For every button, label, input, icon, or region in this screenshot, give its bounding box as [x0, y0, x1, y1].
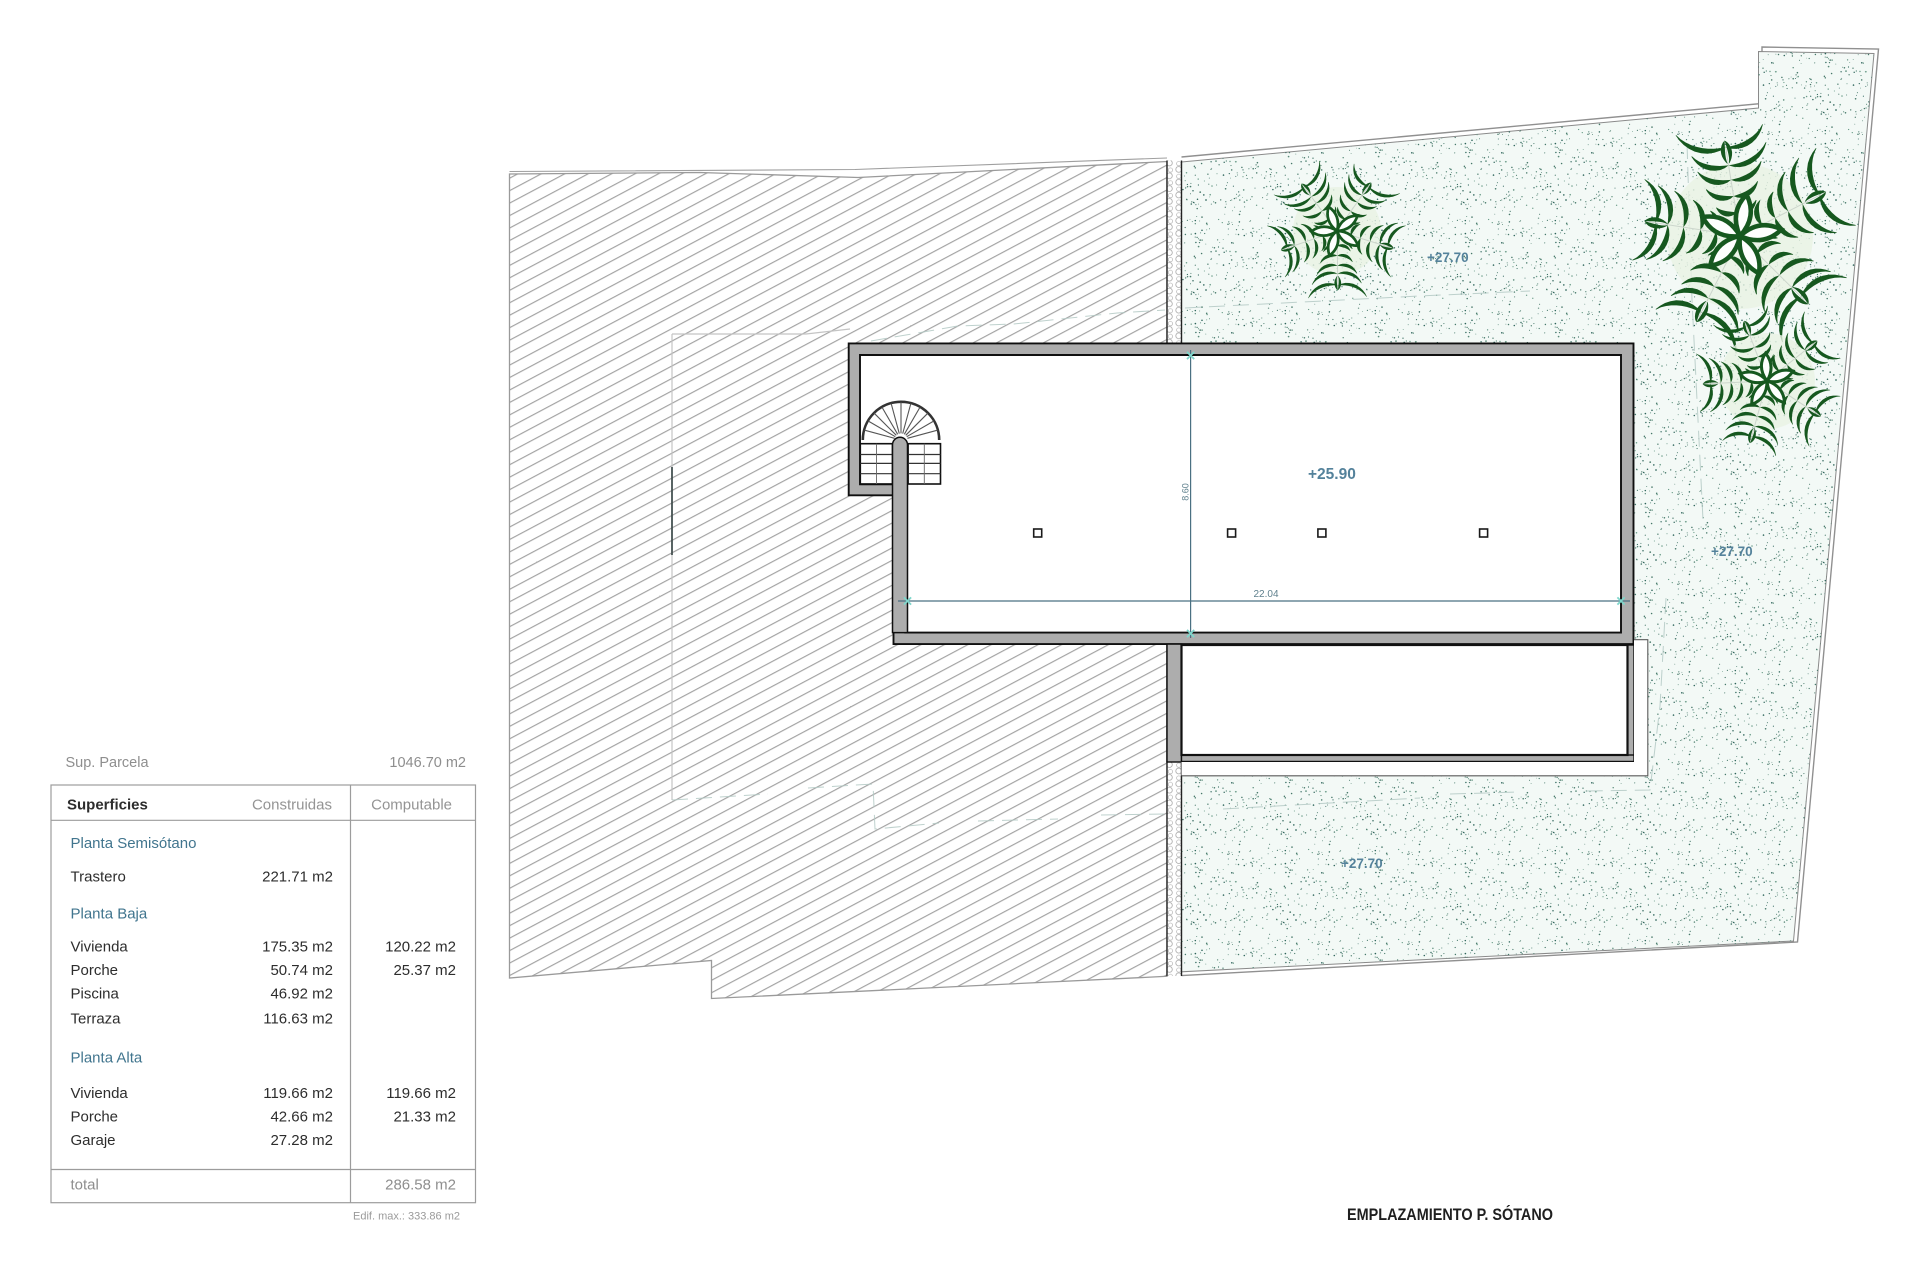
svg-text:EMPLAZAMIENTO P. SÓTANO: EMPLAZAMIENTO P. SÓTANO	[1347, 1205, 1553, 1224]
svg-text:Superficies: Superficies	[67, 797, 148, 814]
svg-text:total: total	[71, 1177, 99, 1194]
svg-text:Sup. Parcela: Sup. Parcela	[66, 755, 150, 771]
svg-text:116.63 m2: 116.63 m2	[263, 1011, 333, 1028]
svg-text:27.28 m2: 27.28 m2	[270, 1132, 333, 1149]
svg-text:Construidas: Construidas	[252, 797, 332, 814]
svg-text:Planta Alta: Planta Alta	[71, 1050, 143, 1067]
svg-text:50.74 m2: 50.74 m2	[270, 962, 333, 979]
svg-text:22.04: 22.04	[1253, 589, 1278, 600]
svg-text:21.33 m2: 21.33 m2	[393, 1109, 456, 1126]
svg-text:119.66 m2: 119.66 m2	[263, 1085, 333, 1102]
svg-text:221.71 m2: 221.71 m2	[262, 869, 333, 886]
svg-text:8.60: 8.60	[1181, 483, 1191, 501]
svg-text:+27.70: +27.70	[1427, 250, 1469, 265]
svg-text:286.58 m2: 286.58 m2	[385, 1177, 456, 1194]
svg-text:46.92 m2: 46.92 m2	[270, 986, 333, 1003]
svg-text:Edif. max.: 333.86 m2: Edif. max.: 333.86 m2	[353, 1211, 460, 1223]
svg-text:Computable: Computable	[371, 797, 452, 814]
svg-text:+27.70: +27.70	[1711, 544, 1753, 559]
svg-text:42.66 m2: 42.66 m2	[270, 1109, 333, 1126]
svg-text:120.22 m2: 120.22 m2	[385, 939, 456, 956]
svg-text:+25.90: +25.90	[1308, 466, 1356, 483]
svg-text:Planta Baja: Planta Baja	[71, 906, 148, 923]
svg-text:119.66 m2: 119.66 m2	[386, 1085, 456, 1102]
svg-text:Garaje: Garaje	[71, 1132, 116, 1149]
svg-text:Piscina: Piscina	[71, 986, 120, 1003]
svg-text:Porche: Porche	[71, 1109, 119, 1126]
svg-text:Planta Semisótano: Planta Semisótano	[71, 835, 197, 852]
svg-text:Porche: Porche	[71, 962, 119, 979]
svg-text:Trastero: Trastero	[71, 869, 126, 886]
svg-text:Terraza: Terraza	[71, 1011, 122, 1028]
svg-text:1046.70 m2: 1046.70 m2	[389, 755, 466, 771]
svg-text:Vivienda: Vivienda	[71, 1085, 129, 1102]
svg-text:175.35 m2: 175.35 m2	[262, 939, 333, 956]
svg-text:+27.70: +27.70	[1341, 856, 1383, 871]
svg-text:Vivienda: Vivienda	[71, 939, 129, 956]
svg-text:25.37 m2: 25.37 m2	[393, 962, 456, 979]
